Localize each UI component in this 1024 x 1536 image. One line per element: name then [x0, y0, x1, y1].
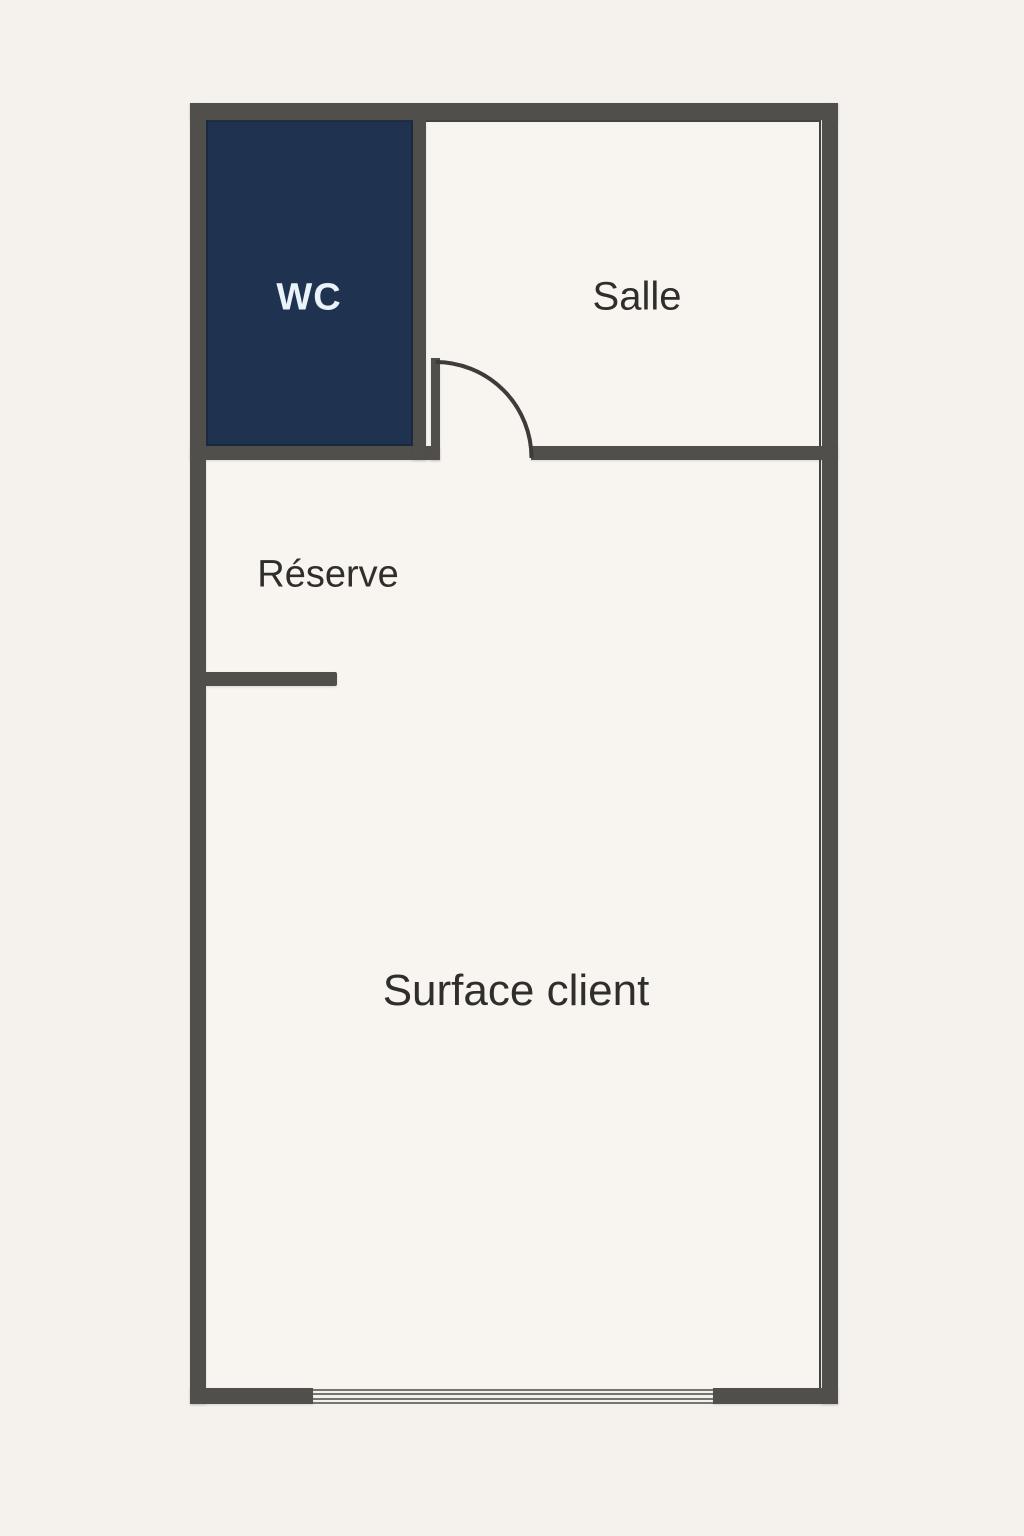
storefront-window — [313, 1389, 713, 1404]
door-swing-arc — [433, 356, 535, 460]
window-pane-line — [313, 1393, 713, 1395]
window-pane-line — [313, 1398, 713, 1400]
wall-wc-salle-divider — [413, 120, 426, 460]
floor-plan: WC Salle Réserve Surface client — [0, 0, 1024, 1536]
wall-bottom-left-segment — [190, 1388, 313, 1404]
room-label-surface-client: Surface client — [383, 966, 650, 1016]
wall-salle-bottom — [531, 446, 838, 460]
wall-under-wc — [190, 446, 440, 460]
window-pane-line — [313, 1389, 713, 1391]
room-label-salle: Salle — [593, 275, 682, 320]
room-label-reserve: Réserve — [257, 554, 399, 597]
room-surface-client — [206, 460, 821, 1388]
window-pane-line — [313, 1402, 713, 1404]
wall-bottom-right-segment — [713, 1388, 838, 1404]
room-label-wc: WC — [276, 277, 341, 320]
wall-left — [190, 103, 206, 1404]
wall-right — [822, 103, 838, 1404]
wall-top — [190, 103, 838, 120]
wall-reserve-stub — [206, 672, 337, 686]
